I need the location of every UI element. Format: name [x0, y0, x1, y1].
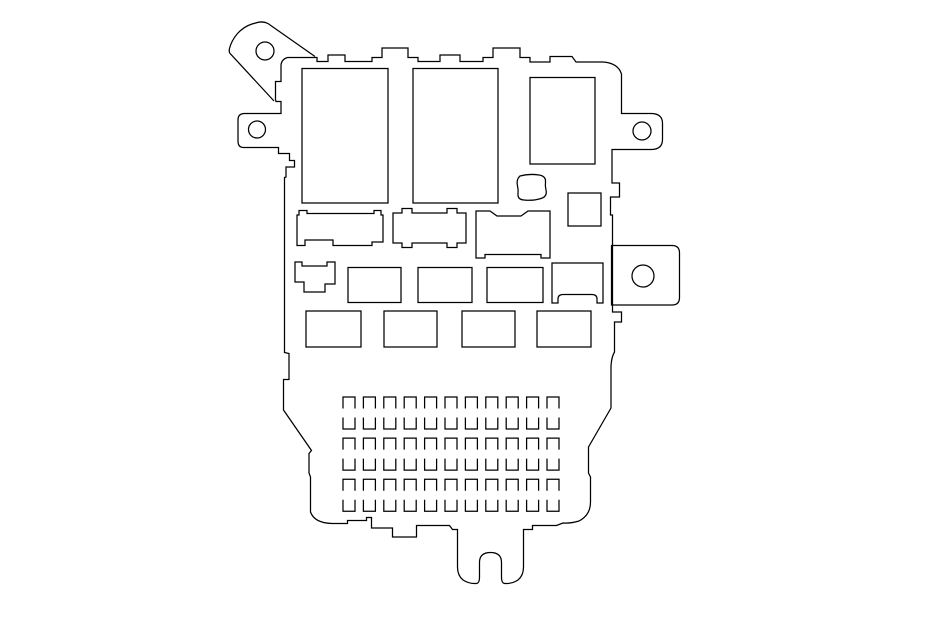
terminal-pin-r6-c2	[363, 500, 375, 512]
terminal-pin-r3-c11	[547, 438, 559, 450]
terminal-pin-r5-c9	[506, 479, 518, 491]
terminal-pin-r3-c8	[486, 438, 498, 450]
terminal-pin-r3-c6	[445, 438, 457, 450]
terminal-pin-r1-c9	[506, 397, 518, 409]
relay-large-2	[413, 69, 498, 204]
terminal-pin-r1-c8	[486, 397, 498, 409]
bolt-hole-left	[249, 121, 266, 138]
diagram-strokes	[229, 22, 679, 584]
terminal-pin-r2-c4	[404, 418, 416, 430]
terminal-pin-r3-c5	[425, 438, 437, 450]
fuse-slot-row2-4	[537, 311, 591, 347]
terminal-pin-r5-c8	[486, 479, 498, 491]
terminal-pin-r6-c1	[343, 500, 355, 512]
terminal-pin-r4-c3	[384, 459, 396, 471]
terminal-pin-r2-c10	[527, 418, 539, 430]
fuse-slot-row2-2	[384, 311, 437, 347]
relay-large-3	[530, 78, 595, 165]
terminal-pin-r1-c7	[465, 397, 477, 409]
relay-socket-left	[297, 211, 383, 246]
terminal-pin-r1-c6	[445, 397, 457, 409]
terminal-pin-r4-c7	[465, 459, 477, 471]
terminal-pin-r2-c7	[465, 418, 477, 430]
bolt-hole-top-left	[256, 42, 274, 60]
terminal-pin-r3-c4	[404, 438, 416, 450]
terminal-pin-r4-c2	[363, 459, 375, 471]
relay-socket-right	[476, 211, 550, 258]
fuse-slot-row1-3	[487, 268, 543, 303]
terminal-pin-r6-c3	[384, 500, 396, 512]
terminal-pin-r5-c11	[547, 479, 559, 491]
fuse-slot-arch-bottom	[552, 263, 603, 303]
terminal-pin-r5-c10	[527, 479, 539, 491]
fuse-slot-boot	[295, 262, 335, 292]
terminal-pin-r2-c9	[506, 418, 518, 430]
terminal-pin-r3-c7	[465, 438, 477, 450]
terminal-pin-r3-c9	[506, 438, 518, 450]
terminal-pin-r6-c8	[486, 500, 498, 512]
terminal-pin-r6-c7	[465, 500, 477, 512]
fuse-slot-row1-2	[418, 268, 472, 303]
terminal-pin-r5-c3	[384, 479, 396, 491]
relay-small-square	[568, 193, 601, 226]
terminal-pin-r1-c2	[363, 397, 375, 409]
terminal-pin-r1-c11	[547, 397, 559, 409]
terminal-pin-r2-c8	[486, 418, 498, 430]
bolt-hole-connector	[632, 265, 654, 287]
terminal-pin-r4-c10	[527, 459, 539, 471]
terminal-pin-r3-c10	[527, 438, 539, 450]
terminal-pin-r5-c6	[445, 479, 457, 491]
terminal-pin-r4-c4	[404, 459, 416, 471]
bolt-hole-right	[633, 122, 651, 140]
terminal-pin-r5-c4	[404, 479, 416, 491]
terminal-pin-r4-c8	[486, 459, 498, 471]
terminal-pin-r1-c1	[343, 397, 355, 409]
terminal-pin-r2-c5	[425, 418, 437, 430]
terminal-pin-r6-c4	[404, 500, 416, 512]
terminal-pin-r2-c2	[363, 418, 375, 430]
fuse-slot-row2-1	[306, 311, 361, 347]
fuse-box-svg	[0, 0, 950, 623]
terminal-pin-r3-c3	[384, 438, 396, 450]
terminal-pin-r4-c11	[547, 459, 559, 471]
terminal-pin-r5-c7	[465, 479, 477, 491]
terminal-pin-r6-c9	[506, 500, 518, 512]
terminal-pin-r6-c10	[527, 500, 539, 512]
terminal-pin-r4-c5	[425, 459, 437, 471]
terminal-pin-r2-c6	[445, 418, 457, 430]
connector-blob	[517, 174, 546, 200]
relay-large-1	[302, 69, 388, 204]
relay-socket-middle	[393, 209, 466, 248]
terminal-pin-r2-c1	[343, 418, 355, 430]
terminal-pin-r2-c11	[547, 418, 559, 430]
fuse-slot-row2-3	[462, 311, 515, 347]
terminal-pin-r2-c3	[384, 418, 396, 430]
fuse-box-diagram	[0, 0, 950, 623]
terminal-pin-r6-c5	[425, 500, 437, 512]
terminal-pin-r5-c5	[425, 479, 437, 491]
terminal-pin-r6-c6	[445, 500, 457, 512]
terminal-pin-r1-c5	[425, 397, 437, 409]
terminal-pin-r6-c11	[547, 500, 559, 512]
terminal-pin-r5-c1	[343, 479, 355, 491]
terminal-pin-r1-c10	[527, 397, 539, 409]
terminal-pin-r4-c9	[506, 459, 518, 471]
terminal-pin-r4-c6	[445, 459, 457, 471]
terminal-pin-r1-c3	[384, 397, 396, 409]
terminal-pin-r3-c1	[343, 438, 355, 450]
terminal-pin-r5-c2	[363, 479, 375, 491]
fuse-slot-row1-1	[348, 268, 401, 303]
terminal-pin-r3-c2	[363, 438, 375, 450]
terminal-pin-r4-c1	[343, 459, 355, 471]
terminal-pin-r1-c4	[404, 397, 416, 409]
connector-tab-right	[612, 246, 680, 306]
